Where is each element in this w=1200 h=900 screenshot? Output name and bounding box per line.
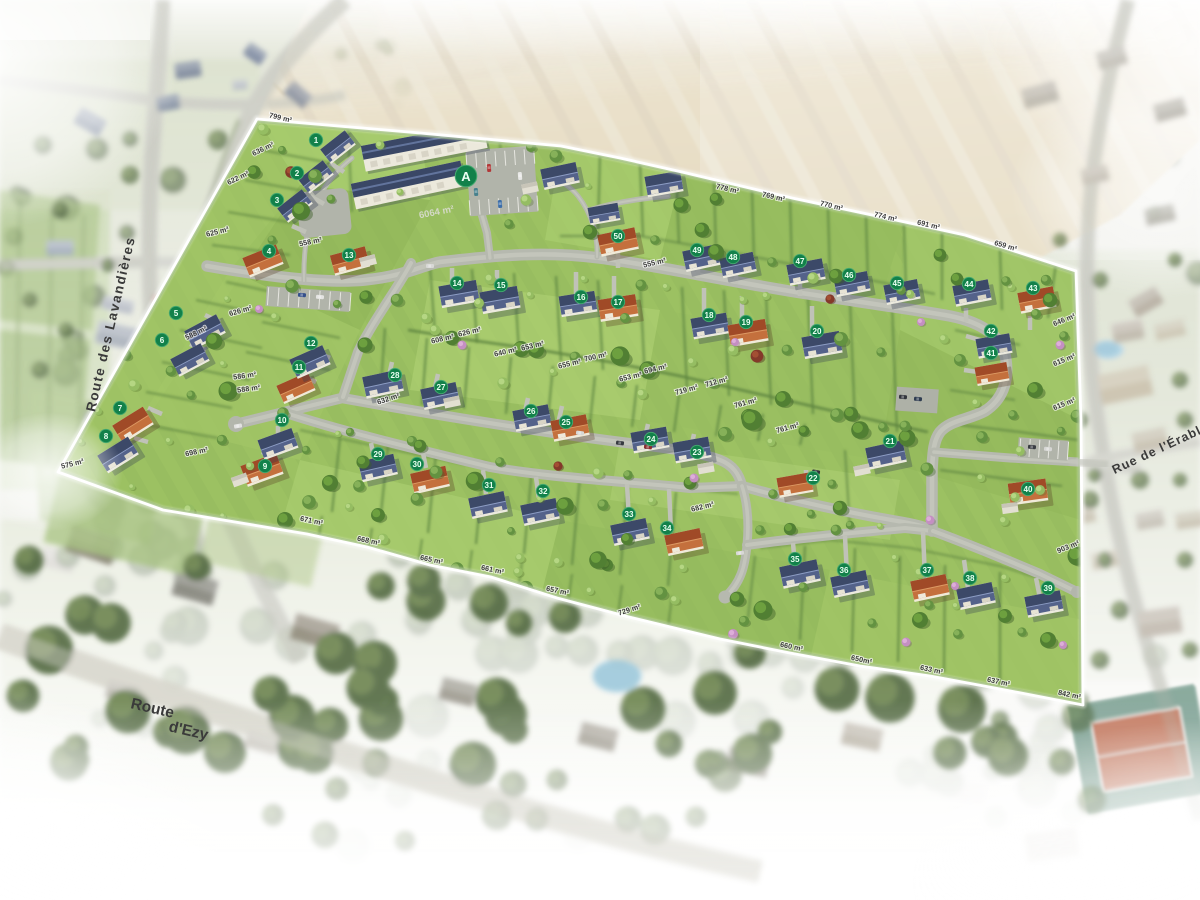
svg-text:6: 6 [160,336,165,345]
svg-text:20: 20 [812,327,822,336]
svg-text:13: 13 [344,251,354,260]
svg-text:42: 42 [986,327,996,336]
svg-text:10: 10 [277,416,287,425]
svg-text:46: 46 [844,271,854,280]
svg-text:16: 16 [576,293,586,302]
svg-text:23: 23 [692,448,702,457]
svg-text:18: 18 [704,311,714,320]
svg-text:39: 39 [1043,584,1053,593]
svg-text:32: 32 [538,487,548,496]
svg-text:43: 43 [1028,284,1038,293]
svg-text:9: 9 [263,462,268,471]
svg-text:22: 22 [808,474,818,483]
svg-text:27: 27 [436,383,446,392]
svg-text:8: 8 [104,432,109,441]
svg-text:7: 7 [118,404,123,413]
svg-text:44: 44 [964,280,974,289]
svg-text:A: A [461,169,471,184]
svg-text:34: 34 [662,524,672,533]
svg-text:49: 49 [692,246,702,255]
svg-text:31: 31 [484,481,494,490]
svg-text:50: 50 [613,232,623,241]
svg-text:15: 15 [496,281,506,290]
svg-text:5: 5 [174,309,179,318]
svg-text:29: 29 [373,450,383,459]
svg-text:30: 30 [412,460,422,469]
svg-text:12: 12 [306,339,316,348]
svg-text:24: 24 [646,435,656,444]
svg-text:37: 37 [922,566,932,575]
svg-text:28: 28 [390,371,400,380]
svg-text:1: 1 [314,136,319,145]
svg-text:3: 3 [275,196,280,205]
svg-text:45: 45 [892,279,902,288]
svg-text:47: 47 [795,257,805,266]
svg-text:48: 48 [728,253,738,262]
svg-text:26: 26 [526,407,536,416]
svg-text:21: 21 [885,437,895,446]
svg-text:40: 40 [1023,485,1033,494]
svg-text:33: 33 [624,510,634,519]
svg-text:25: 25 [561,418,571,427]
svg-text:11: 11 [295,363,304,372]
svg-text:38: 38 [965,574,975,583]
svg-text:19: 19 [741,318,751,327]
svg-text:41: 41 [986,349,996,358]
svg-text:4: 4 [267,247,272,256]
svg-text:17: 17 [613,298,623,307]
svg-text:36: 36 [839,566,849,575]
svg-text:35: 35 [790,555,800,564]
svg-text:14: 14 [452,279,462,288]
svg-text:2: 2 [295,169,300,178]
